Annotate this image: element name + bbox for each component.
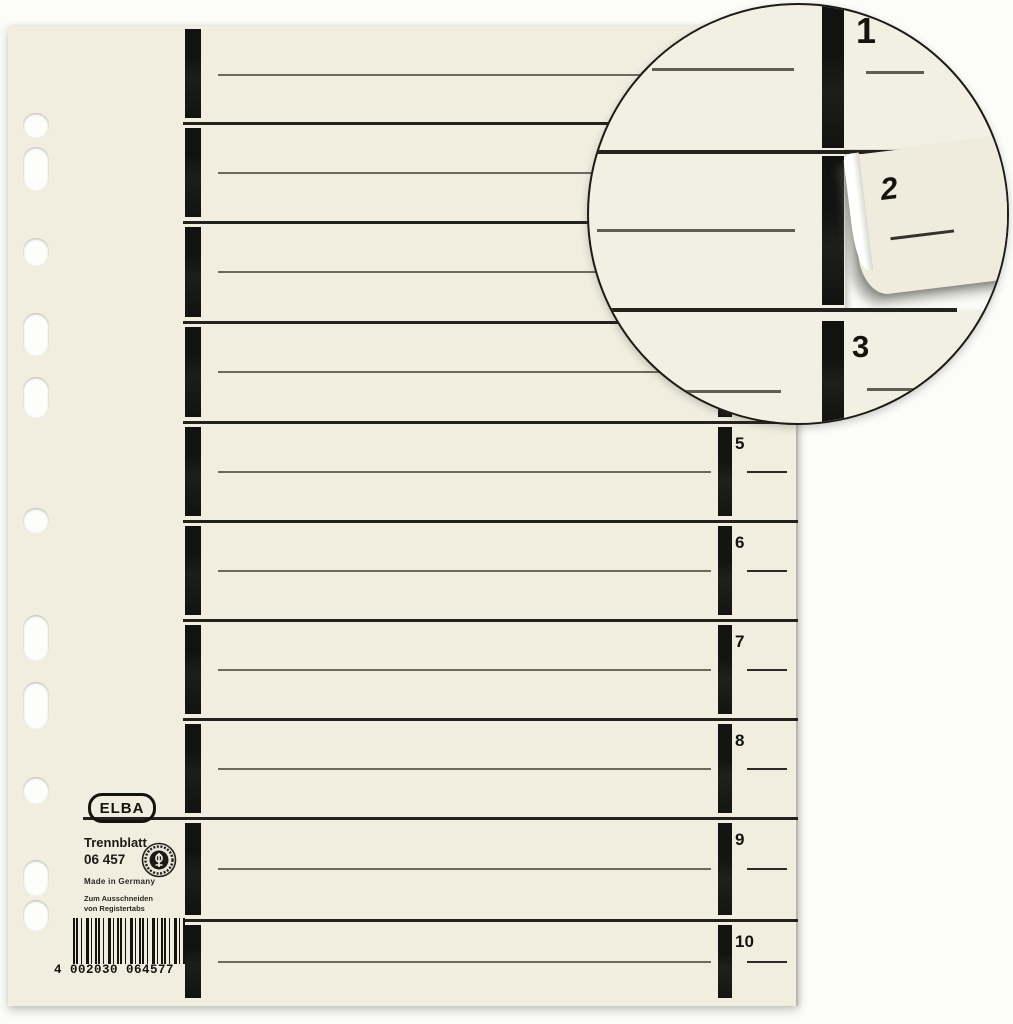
tab-line [747,471,787,473]
tab-number-6: 6 [735,534,744,551]
write-on-line [218,768,711,770]
product-photo: { "product": { "brand": "ELBA", "name": … [0,0,1013,1024]
inset-tab-bar-2 [822,156,844,305]
punch-hole [23,147,49,191]
tab-marker-bar-right [718,625,732,714]
tab-line [747,669,787,671]
usage-note-line2: von Registertabs [84,904,145,913]
lifted-tab-2: 2 [846,135,1009,297]
magnifier-inset: 1 3 2 [587,3,1009,425]
write-on-line [218,669,711,671]
inset-tab-number-2: 2 [878,170,900,208]
tab-marker-bar-right [718,526,732,615]
punch-hole [23,508,49,533]
tab-marker-bar-left [185,427,201,516]
article-number: 06 457 [84,852,125,867]
punch-hole [23,238,49,266]
inset-tab-line [890,229,954,239]
section-divider-line [83,817,798,820]
tab-marker-bar-left [185,724,201,813]
section-divider-line [183,919,798,922]
tab-marker-bar-left [185,128,201,217]
brand-logo-text: ELBA [100,800,145,817]
product-name: Trennblatt [84,835,147,850]
write-on-line [218,868,711,870]
eco-seal-icon [141,842,177,883]
inset-tab-bar-3 [822,321,844,423]
write-on-line [218,371,711,373]
inset-section-divider [589,308,957,312]
section-divider-line [183,619,798,622]
tab-marker-bar-right [718,724,732,813]
inset-tab-line [867,388,927,391]
tab-marker-bar-left [185,327,201,417]
brand-logo: ELBA [88,793,156,823]
section-divider-line [183,718,798,721]
section-divider-line [183,520,798,523]
tab-marker-bar-right [718,925,732,998]
inset-tab-line [866,71,924,74]
tab-line [747,570,787,572]
punch-hole [23,377,49,418]
punch-hole [23,682,49,729]
punch-hole [23,615,49,661]
inset-tab-number-1: 1 [856,13,876,49]
tab-marker-bar-left [185,823,201,915]
write-on-line [218,570,711,572]
tab-number-9: 9 [735,831,744,848]
barcode: 4 002030 064577 [54,918,204,978]
barcode-bars [73,918,185,964]
tab-number-8: 8 [735,732,744,749]
tab-marker-bar-left [185,625,201,714]
tab-line [747,961,787,963]
tab-marker-bar-left [185,227,201,317]
tab-number-7: 7 [735,633,744,650]
barcode-digits: 4 002030 064577 [54,963,204,977]
tab-number-10: 10 [735,933,754,950]
punch-hole [23,313,49,356]
inset-write-on-line [597,229,795,232]
inset-tab-bar-1 [822,5,844,148]
tab-marker-bar-right [718,427,732,516]
punch-hole [23,777,49,804]
punch-hole [23,900,49,931]
tab-number-5: 5 [735,435,744,452]
tab-marker-bar-left [185,526,201,615]
tab-marker-bar-right [718,823,732,915]
usage-note-line1: Zum Ausschneiden [84,894,153,903]
write-on-line [218,961,711,963]
tab-line [747,868,787,870]
inset-write-on-line [652,68,794,71]
inset-tab-number-3: 3 [852,331,869,362]
tab-marker-bar-left [185,29,201,118]
punch-hole [23,113,49,138]
write-on-line [218,471,711,473]
section-divider-line [183,421,798,424]
punch-hole [23,860,49,896]
tab-line [747,768,787,770]
inset-write-on-line [619,390,781,393]
